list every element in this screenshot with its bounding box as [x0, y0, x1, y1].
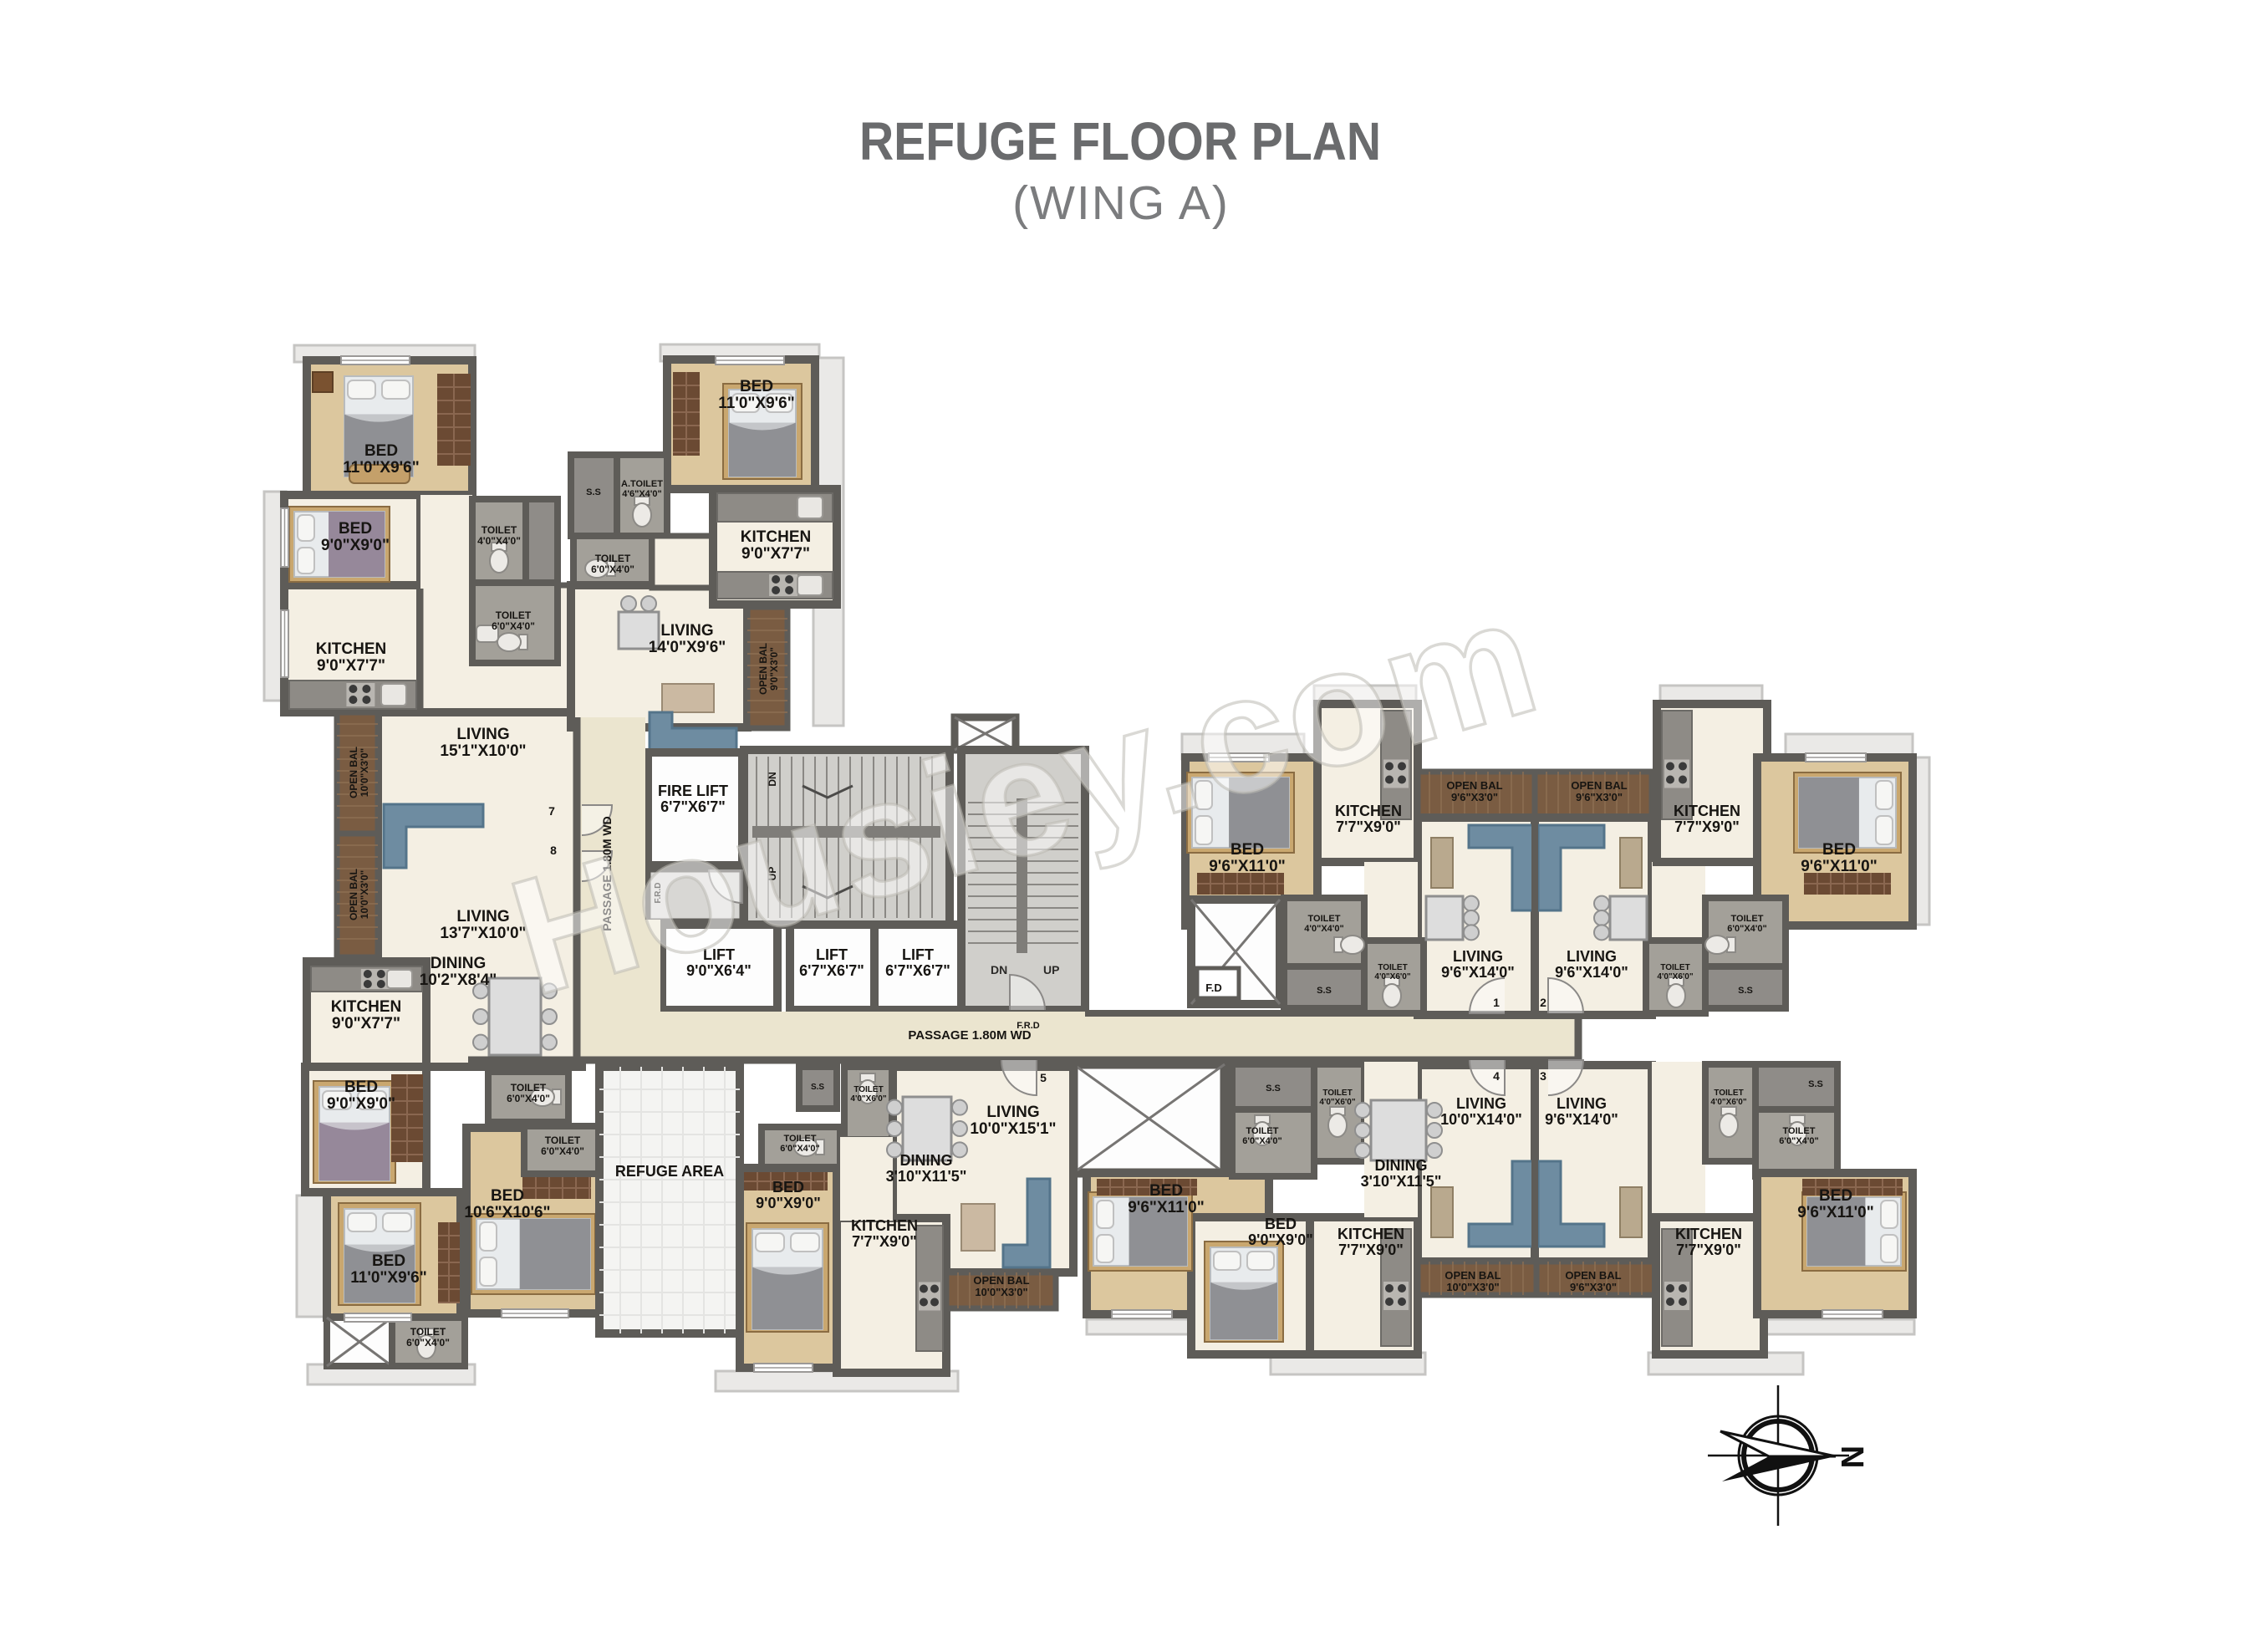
svg-text:TOILET4'0"X6'0": TOILET4'0"X6'0": [850, 1085, 886, 1104]
svg-text:PASSAGE 1.80M WD: PASSAGE 1.80M WD: [908, 1028, 1031, 1043]
svg-text:OPEN BAL9'6"X3'0": OPEN BAL9'6"X3'0": [1571, 779, 1627, 803]
svg-text:TOILET6'0"X4'0": TOILET6'0"X4'0": [1242, 1126, 1281, 1146]
svg-text:TOILET4'0"X6'0": TOILET4'0"X6'0": [1319, 1089, 1355, 1107]
svg-text:TOILET4'0"X4'0": TOILET4'0"X4'0": [477, 524, 521, 547]
svg-text:S.S: S.S: [1317, 986, 1332, 996]
svg-text:5: 5: [1040, 1071, 1047, 1084]
svg-text:2: 2: [1540, 996, 1546, 1009]
svg-text:4: 4: [1493, 1069, 1500, 1083]
svg-text:KITCHEN7'7"X9'0": KITCHEN7'7"X9'0": [851, 1217, 918, 1250]
svg-text:OPEN BAL9'6"X3'0": OPEN BAL9'6"X3'0": [1446, 779, 1502, 803]
svg-text:KITCHEN9'0"X7'7": KITCHEN9'0"X7'7": [331, 998, 401, 1032]
svg-text:TOILET6'0"X4'0": TOILET6'0"X4'0": [507, 1082, 550, 1104]
svg-text:REFUGE AREA: REFUGE AREA: [615, 1163, 724, 1180]
svg-text:KITCHEN9'0"X7'7": KITCHEN9'0"X7'7": [741, 528, 811, 563]
svg-text:OPEN BAL9'6"X3'0": OPEN BAL9'6"X3'0": [1565, 1269, 1621, 1293]
svg-text:OPEN BAL9'0"X3'0": OPEN BAL9'0"X3'0": [757, 643, 780, 695]
svg-text:DINING10'2"X8'4": DINING10'2"X8'4": [420, 955, 497, 989]
svg-text:F.D: F.D: [1205, 982, 1222, 994]
svg-text:1: 1: [1493, 996, 1500, 1009]
svg-text:TOILET6'0"X4'0": TOILET6'0"X4'0": [1727, 914, 1766, 934]
svg-text:KITCHEN7'7"X9'0": KITCHEN7'7"X9'0": [1337, 1226, 1404, 1258]
svg-text:A.TOILET4'6"X4'0": A.TOILET4'6"X4'0": [621, 479, 663, 499]
svg-text:3: 3: [1540, 1069, 1546, 1083]
svg-text:TOILET6'0"X4'0": TOILET6'0"X4'0": [492, 609, 535, 632]
svg-text:TOILET4'0"X6'0": TOILET4'0"X6'0": [1710, 1089, 1746, 1107]
svg-text:F.R.D: F.R.D: [1016, 1021, 1040, 1031]
svg-text:TOILET4'0"X4'0": TOILET4'0"X4'0": [1304, 914, 1343, 934]
svg-text:TOILET6'0"X4'0": TOILET6'0"X4'0": [780, 1134, 819, 1154]
svg-text:UP: UP: [1043, 963, 1059, 976]
svg-text:KITCHEN9'0"X7'7": KITCHEN9'0"X7'7": [316, 640, 386, 675]
svg-text:TOILET6'0"X4'0": TOILET6'0"X4'0": [591, 553, 634, 575]
svg-text:S.S: S.S: [811, 1083, 824, 1092]
svg-text:S.S: S.S: [1266, 1083, 1281, 1094]
svg-text:OPEN BAL10'0"X3'0": OPEN BAL10'0"X3'0": [1444, 1269, 1501, 1293]
svg-text:TOILET4'0"X6'0": TOILET4'0"X6'0": [1657, 963, 1693, 982]
svg-text:OPEN BAL10'0"X3'0": OPEN BAL10'0"X3'0": [348, 747, 370, 798]
svg-text:TOILET4'0"X6'0": TOILET4'0"X6'0": [1374, 963, 1410, 982]
svg-text:(WING A): (WING A): [1012, 176, 1230, 230]
svg-text:S.S: S.S: [1808, 1079, 1823, 1089]
svg-text:N: N: [1834, 1445, 1869, 1468]
svg-text:S.S: S.S: [586, 487, 601, 497]
svg-text:S.S: S.S: [1738, 986, 1753, 996]
svg-text:KITCHEN7'7"X9'0": KITCHEN7'7"X9'0": [1674, 803, 1740, 835]
svg-text:TOILET6'0"X4'0": TOILET6'0"X4'0": [1779, 1126, 1818, 1146]
svg-text:OPEN BAL10'0"X3'0": OPEN BAL10'0"X3'0": [973, 1274, 1029, 1298]
svg-text:DN: DN: [991, 963, 1007, 976]
svg-text:TOILET6'0"X4'0": TOILET6'0"X4'0": [541, 1134, 584, 1157]
svg-text:7: 7: [548, 804, 555, 818]
svg-text:TOILET6'0"X4'0": TOILET6'0"X4'0": [406, 1326, 450, 1349]
svg-text:KITCHEN7'7"X9'0": KITCHEN7'7"X9'0": [1335, 803, 1402, 835]
svg-text:REFUGE FLOOR PLAN: REFUGE FLOOR PLAN: [859, 111, 1381, 171]
svg-text:OPEN BAL10'0"X3'0": OPEN BAL10'0"X3'0": [348, 869, 370, 920]
svg-text:KITCHEN7'7"X9'0": KITCHEN7'7"X9'0": [1675, 1226, 1742, 1258]
